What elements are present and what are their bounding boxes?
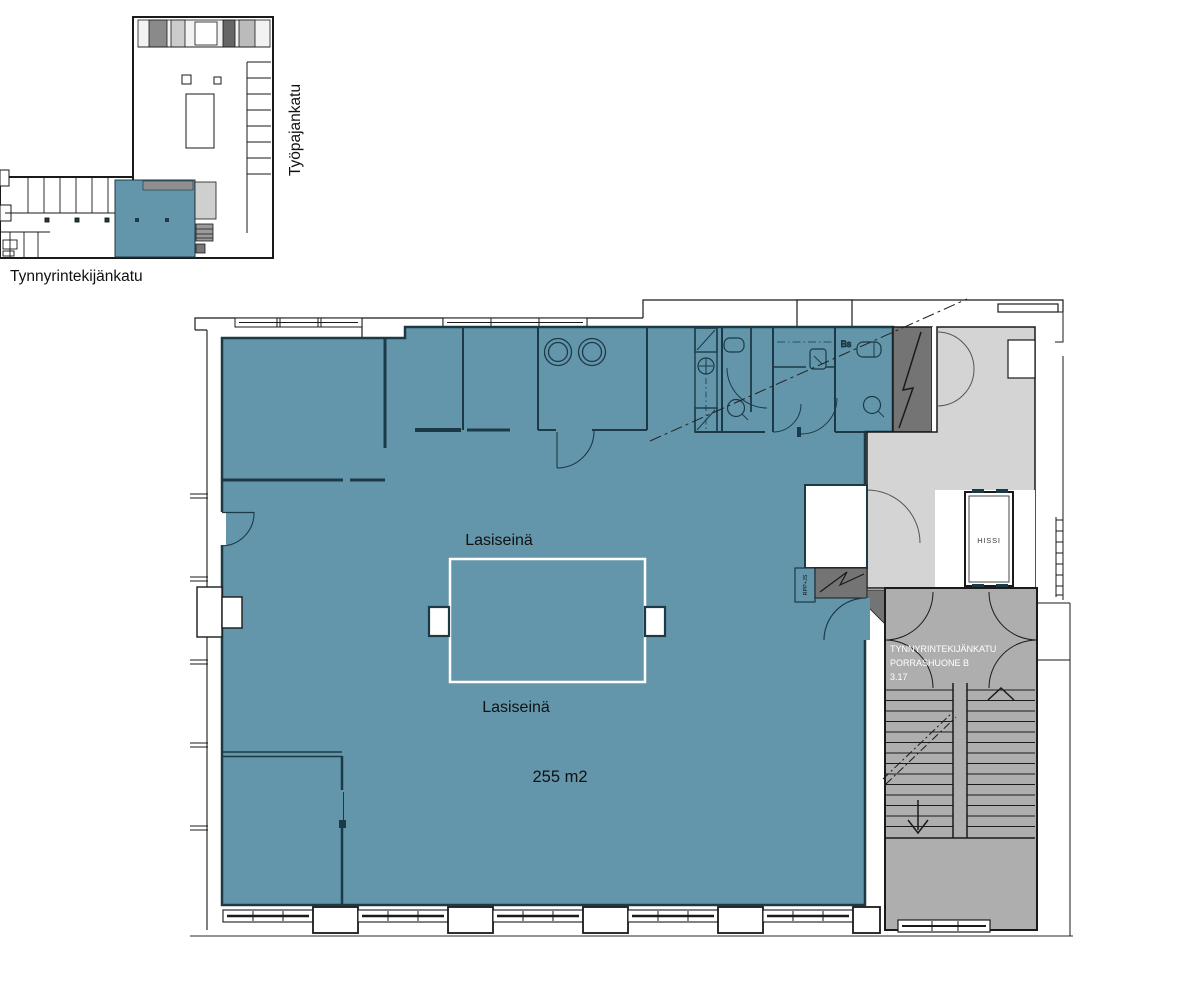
window-strip xyxy=(628,910,718,922)
street-label-tyopajankatu: Työpajankatu xyxy=(287,84,304,176)
area-label: 255 m2 xyxy=(532,768,587,786)
closet-room xyxy=(805,485,867,568)
unit-area-highlight xyxy=(222,327,893,905)
overview-highlighted-unit xyxy=(115,180,195,257)
glass-wall-label-bottom: Lasiseinä xyxy=(482,699,550,716)
wall-pier xyxy=(197,587,222,637)
svg-text:PORRASHUONE B: PORRASHUONE B xyxy=(890,658,969,668)
glass-wall-label-top: Lasiseinä xyxy=(465,532,533,549)
riser-label: RPP+JS xyxy=(803,574,809,595)
right-exterior xyxy=(1037,312,1070,936)
fixture-label: Bs xyxy=(841,339,852,349)
wall-pier xyxy=(222,597,242,628)
electrical-shaft-top xyxy=(893,327,937,432)
elevator-label: HISSI xyxy=(977,536,1001,545)
stairwell: TYNNYRINTEKIJÄNKATU PORRASHUONE B 3.17 xyxy=(883,588,1037,932)
lobby-recess xyxy=(1008,340,1035,378)
column xyxy=(429,607,449,636)
window-strip xyxy=(763,910,853,922)
top-window-strips xyxy=(235,318,587,327)
elevator-hissi: HISSI xyxy=(935,489,1035,588)
svg-text:3.17: 3.17 xyxy=(890,672,908,682)
wall-pier xyxy=(583,907,628,933)
overview-building-west-wing xyxy=(0,177,133,258)
window-strip xyxy=(223,910,313,922)
overview-roof-detail xyxy=(138,20,270,47)
street-label-tynnyrintekijankatu: Tynnyrintekijänkatu xyxy=(10,268,143,285)
svg-text:TYNNYRINTEKIJÄNKATU: TYNNYRINTEKIJÄNKATU xyxy=(890,644,996,654)
main-plan: Bs Lasiseinä Lasiseinä 255 m2 xyxy=(190,299,1073,936)
window-strip xyxy=(358,910,448,922)
ladder-icon xyxy=(1056,517,1063,597)
stairwell-window xyxy=(898,920,990,932)
electrical-shaft-mid xyxy=(815,568,867,598)
bottom-wall xyxy=(223,907,880,933)
wall-pier xyxy=(853,907,880,933)
wall-pier xyxy=(313,907,358,933)
overview-west-annex xyxy=(0,170,9,186)
floor-plan-page: Työpajankatu Tynnyrintekijänkatu xyxy=(0,0,1177,995)
wall-pier xyxy=(448,907,493,933)
window-strip xyxy=(493,910,583,922)
floor-plan-drawing: Työpajankatu Tynnyrintekijänkatu xyxy=(0,0,1177,995)
wall-pier xyxy=(718,907,763,933)
overview-plan: Työpajankatu Tynnyrintekijänkatu xyxy=(0,17,304,285)
column xyxy=(645,607,665,636)
riser-box: RPP+JS xyxy=(795,568,815,602)
